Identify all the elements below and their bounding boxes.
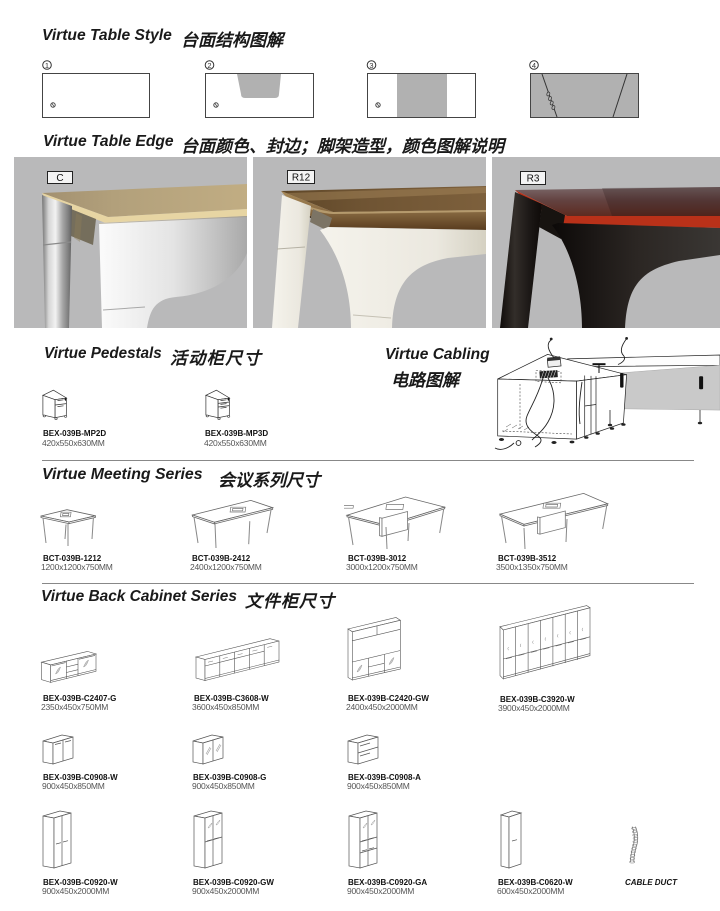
svg-text:4: 4 xyxy=(532,61,536,70)
svg-text:R3: R3 xyxy=(527,174,540,185)
svg-text:1: 1 xyxy=(45,61,49,70)
svg-text:C: C xyxy=(56,173,63,184)
svg-text:2: 2 xyxy=(207,61,211,70)
svg-text:R12: R12 xyxy=(292,173,311,184)
svg-text:3: 3 xyxy=(369,61,373,70)
